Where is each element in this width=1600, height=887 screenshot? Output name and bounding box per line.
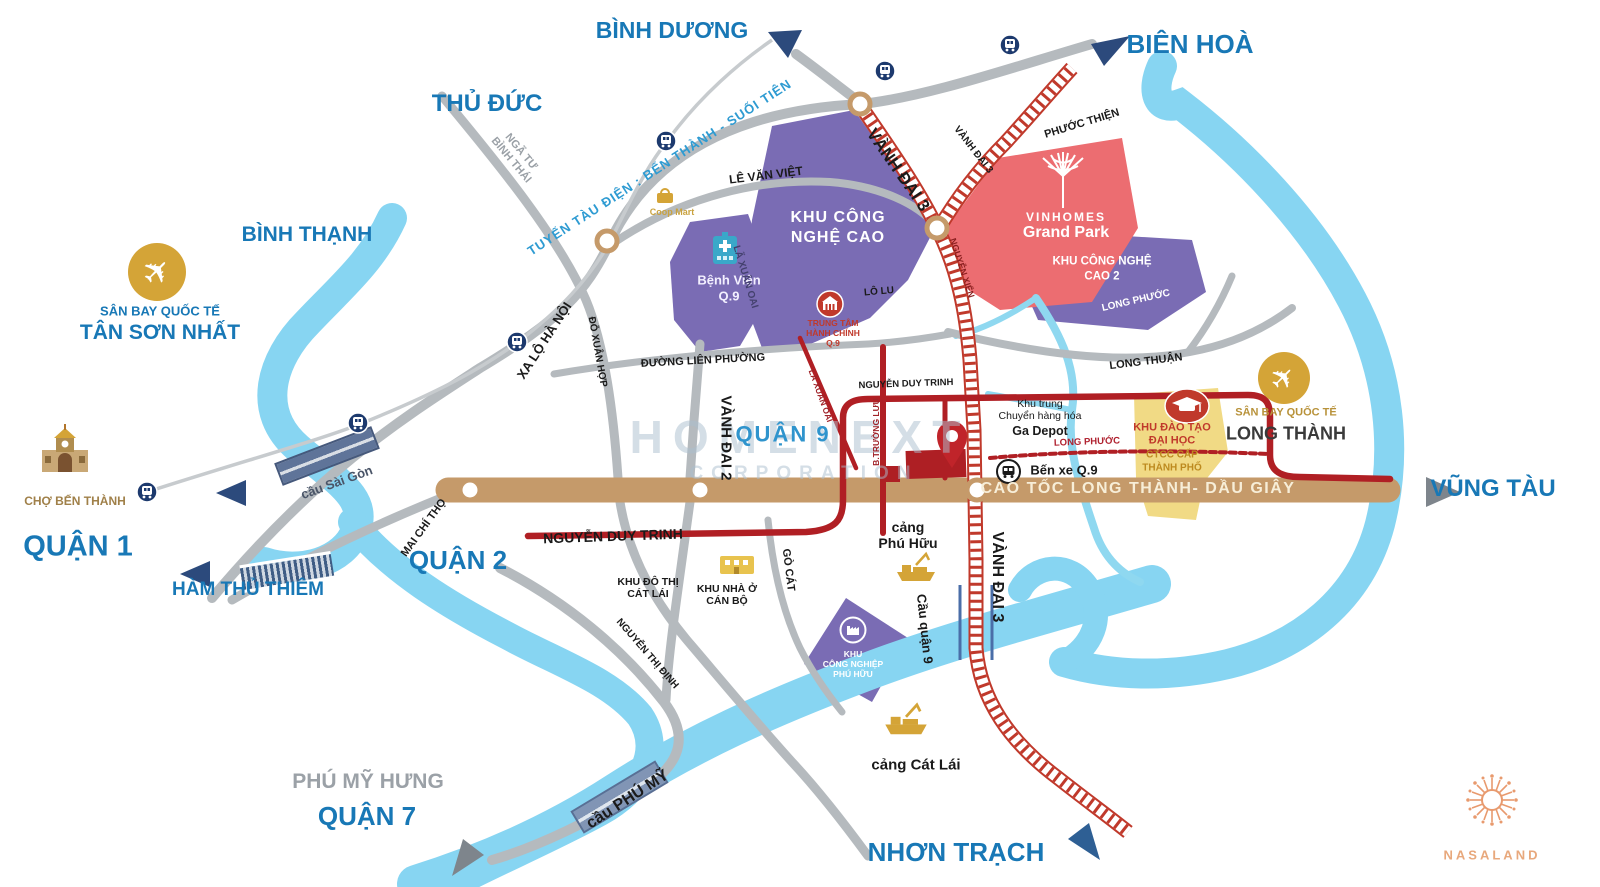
nasaland-logo-icon [1458,766,1526,834]
khu-do-thi-cat-lai-line2: CÁT LÁI [627,588,668,600]
benh-vien-q9-label-line2: Q.9 [719,290,740,305]
khu-cnc2-label-line1: KHU CÔNG NGHỆ [1052,255,1151,268]
region-bien-hoa: BIÊN HOÀ [1126,30,1253,60]
long-thanh-airport-icon: ✈ [1258,352,1310,404]
housing-icon [718,552,756,576]
region-binh-duong: BÌNH DƯƠNG [596,17,748,43]
khu-cnc-label-line1: KHU CÔNG [790,209,885,227]
khu-nha-o-can-bo-line2: CÁN BỘ [706,595,747,607]
vinhomes-tree-icon [1036,150,1090,210]
street-vanh-dai-3-bottom: VÀNH ĐAI 3 [988,532,1006,623]
ben-thanh-market-icon [36,424,94,476]
long-thanh-label-line2: LONG THÀNH [1226,424,1346,445]
region-vung-tau: VŨNG TÀU [1430,475,1555,503]
khu-do-thi-cat-lai-line1: KHU ĐÔ THỊ [617,576,678,588]
region-quan-9: QUẬN 9 [735,421,830,446]
long-thanh-label-line1: SÂN BAY QUỐC TẾ [1235,407,1336,420]
region-quan-1: QUẬN 1 [23,530,133,563]
port-ship-icon [882,700,930,738]
khu-dao-tao-label-line2: ĐẠI HỌC [1149,435,1195,448]
ben-xe-q9-label: Bến xe Q.9 [1030,464,1097,479]
grand-park-label: Grand Park [1023,224,1109,242]
ga-depot-label-line1: Khu trung [1017,398,1063,410]
khu-dao-tao-label-line4: THÀNH PHỐ [1142,462,1201,474]
cang-cat-lai-label: cảng Cát Lái [871,756,960,773]
region-quan-2: QUẬN 2 [409,546,507,576]
metro-station-icon [999,34,1021,56]
arrow-bien-hoa-icon [1091,36,1130,66]
khu-nha-o-can-bo-line1: KHU NHÀ Ở [697,583,757,595]
street-b-truong-luu: B.TRƯỜNG LƯU [872,398,882,466]
khu-dao-tao-label-line1: KHU ĐÀO TẠO [1133,422,1211,435]
nasaland-logo-text: NASALAND [1444,849,1541,864]
tan-son-nhat-airport-icon: ✈ [128,243,186,301]
expressway-label: CAO TỐC LONG THÀNH- DẦU GIÂY [981,480,1296,498]
factory-icon [839,616,867,644]
kcn-phu-huu-line3: PHÚ HỮU [833,670,873,680]
coop-mart-icon [655,188,675,204]
admin-center-icon [816,290,844,318]
cho-ben-thanh-label: CHỢ BẾN THÀNH [24,495,126,509]
khu-cnc-label-line2: NGHỆ CAO [791,229,885,247]
region-quan-7: QUẬN 7 [318,802,416,832]
cang-phu-huu-line2: Phú Hữu [878,535,937,551]
arrow-nhon-trach-icon [1068,823,1100,860]
port-ship-icon [894,550,938,584]
region-ham-thu-thiem: HÀM THỦ THIÊM [172,579,324,601]
ga-depot-label-line3: Ga Depot [1012,424,1068,438]
trung-tam-hanh-chinh-line3: Q.9 [826,339,840,349]
khu-dao-tao-label-line3: CTCC CẤP [1146,449,1198,461]
street-long-phuoc-road: LONG PHƯỚC [1054,436,1120,449]
tan-son-nhat-label-line1: SÂN BAY QUỐC TẾ [100,305,220,320]
metro-station-icon [136,481,158,503]
region-phu-my-hung: PHÚ MỸ HƯNG [292,770,444,794]
tan-son-nhat-label-line2: TÂN SƠN NHẤT [80,321,240,345]
region-binh-thanh: BÌNH THẠNH [242,223,373,247]
city-map: ✈ ✈ [0,0,1600,887]
cang-phu-huu-line1: cảng [892,519,925,535]
metro-station-icon [506,331,528,353]
street-vanh-dai-2: VÀNH ĐAI 2 [717,395,734,480]
arrow-quan1-icon [216,480,246,506]
ga-depot-label-line2: Chuyển hàng hóa [999,410,1082,422]
region-nhon-trach: NHƠN TRẠCH [868,838,1045,868]
metro-station-icon [874,60,896,82]
khu-cnc2-label-line2: CAO 2 [1084,270,1119,283]
region-thu-duc: THỦ ĐỨC [432,90,543,118]
education-icon [1164,388,1210,424]
metro-station-icon [347,412,369,434]
coop-mart-label: Coop Mart [650,207,695,217]
